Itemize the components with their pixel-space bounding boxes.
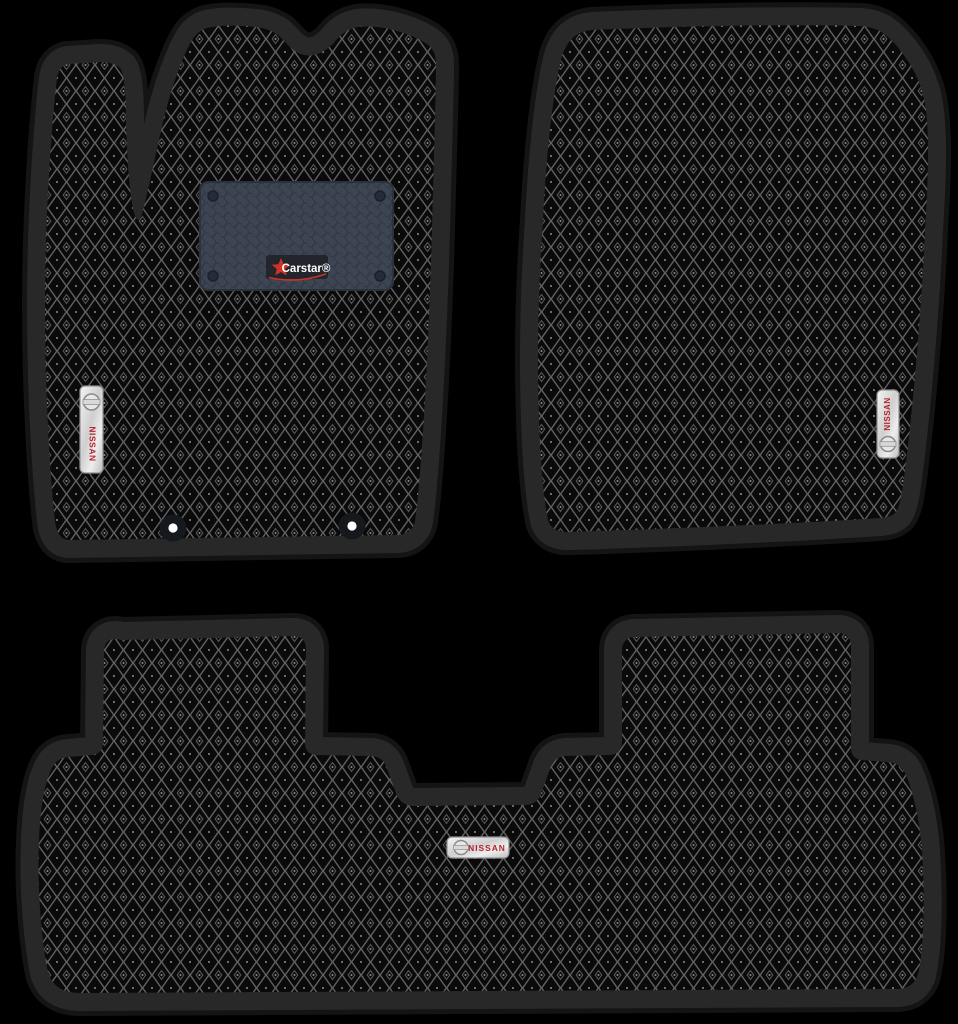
carstar-label: Carstar® [282,263,331,275]
carstar-logo: Carstar® [266,255,331,280]
nissan-badge-passenger: NISSAN [877,390,899,458]
mounting-hole [160,515,187,542]
rear-mat-surface [38,633,923,993]
rivet-icon [208,271,218,281]
product-photo-floor-mats: Carstar® NISSAN NISSAN [0,0,958,1024]
nissan-badge-driver: NISSAN [80,386,103,473]
rear-mat: NISSAN [38,633,923,993]
nissan-label-driver: NISSAN [87,426,97,461]
driver-mat: Carstar® NISSAN [45,26,436,542]
nissan-logo-icon [83,394,100,410]
rivet-icon [375,271,385,281]
nissan-label-passenger: NISSAN [883,397,892,430]
passenger-mat: NISSAN [538,25,928,532]
nissan-logo-icon [454,841,469,855]
nissan-badge-rear: NISSAN [447,837,509,858]
passenger-mat-surface [538,25,928,532]
floor-mats-scene: Carstar® NISSAN NISSAN [0,0,958,1024]
rivet-icon [208,191,218,201]
nissan-label-rear: NISSAN [468,843,506,853]
mounting-hole [339,513,366,540]
nissan-logo-icon [880,437,896,452]
heel-pad: Carstar® [200,182,393,290]
rivet-icon [375,191,385,201]
